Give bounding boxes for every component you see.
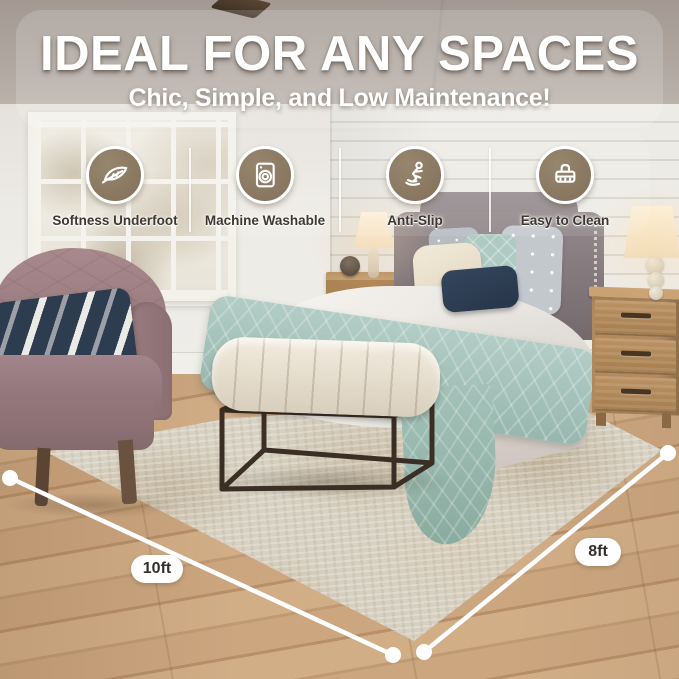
dresser-leg (596, 413, 606, 426)
product-lifestyle-image: 10ft 8ft IDEAL FOR ANY SPACES Chic, Simp… (0, 0, 679, 679)
navy-lumbar-pillow (440, 265, 519, 313)
dresser (592, 286, 679, 429)
feature-label: Easy to Clean (521, 213, 610, 228)
width-label-pill: 8ft (575, 538, 621, 566)
page-subtitle: Chic, Simple, and Low Maintenance! (0, 84, 679, 113)
feature-badges-row: Softness Underfoot Machine Washable (40, 146, 640, 238)
drawer-handle (621, 350, 651, 356)
feature-machine-washable: Machine Washable (190, 146, 340, 238)
bench-cushion (211, 336, 441, 418)
washing-machine-icon (236, 146, 294, 204)
table-lamp-right-base (649, 286, 663, 300)
drawer-handle (621, 388, 651, 394)
feature-label: Machine Washable (205, 213, 325, 228)
feature-label: Softness Underfoot (52, 213, 177, 228)
drawer-handle (621, 312, 651, 318)
feather-icon (86, 146, 144, 204)
feature-softness: Softness Underfoot (40, 146, 190, 238)
slipping-person-icon (386, 146, 444, 204)
length-label: 10ft (143, 560, 171, 578)
armchair (0, 240, 184, 520)
dresser-body (592, 296, 679, 415)
dresser-drawer (595, 376, 676, 414)
feature-anti-slip: Anti-Slip (340, 146, 490, 238)
dresser-leg (662, 413, 671, 428)
armchair-shadow (4, 492, 184, 518)
table-lamp-left-base (368, 248, 379, 278)
bench-shadow (205, 465, 455, 499)
length-label-pill: 10ft (131, 555, 183, 583)
page-title: IDEAL FOR ANY SPACES (0, 26, 679, 82)
dresser-drawer (595, 338, 676, 376)
width-label: 8ft (588, 543, 608, 561)
cleaning-brush-icon (536, 146, 594, 204)
alarm-clock (340, 256, 360, 276)
feature-label: Anti-Slip (387, 213, 443, 228)
dresser-drawer (595, 300, 676, 338)
feature-easy-clean: Easy to Clean (490, 146, 640, 238)
